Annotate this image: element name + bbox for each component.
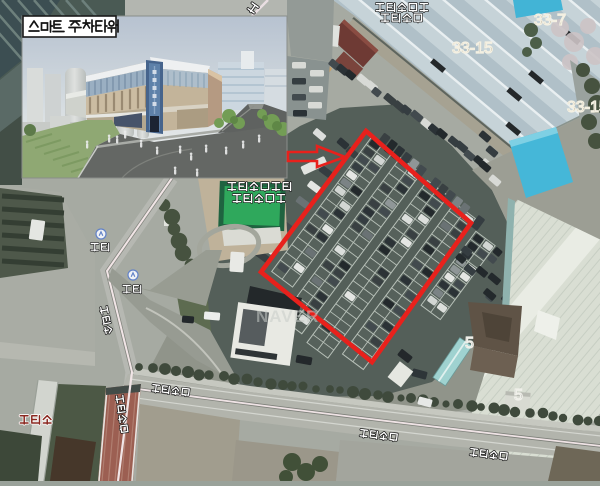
svg-text:33-15: 33-15 [567,99,600,116]
svg-text:NAVER: NAVER [256,307,319,326]
svg-text:33-15: 33-15 [452,40,493,57]
svg-text:5: 5 [465,335,474,352]
svg-text:33-7: 33-7 [534,12,566,29]
svg-text:5: 5 [514,387,523,404]
